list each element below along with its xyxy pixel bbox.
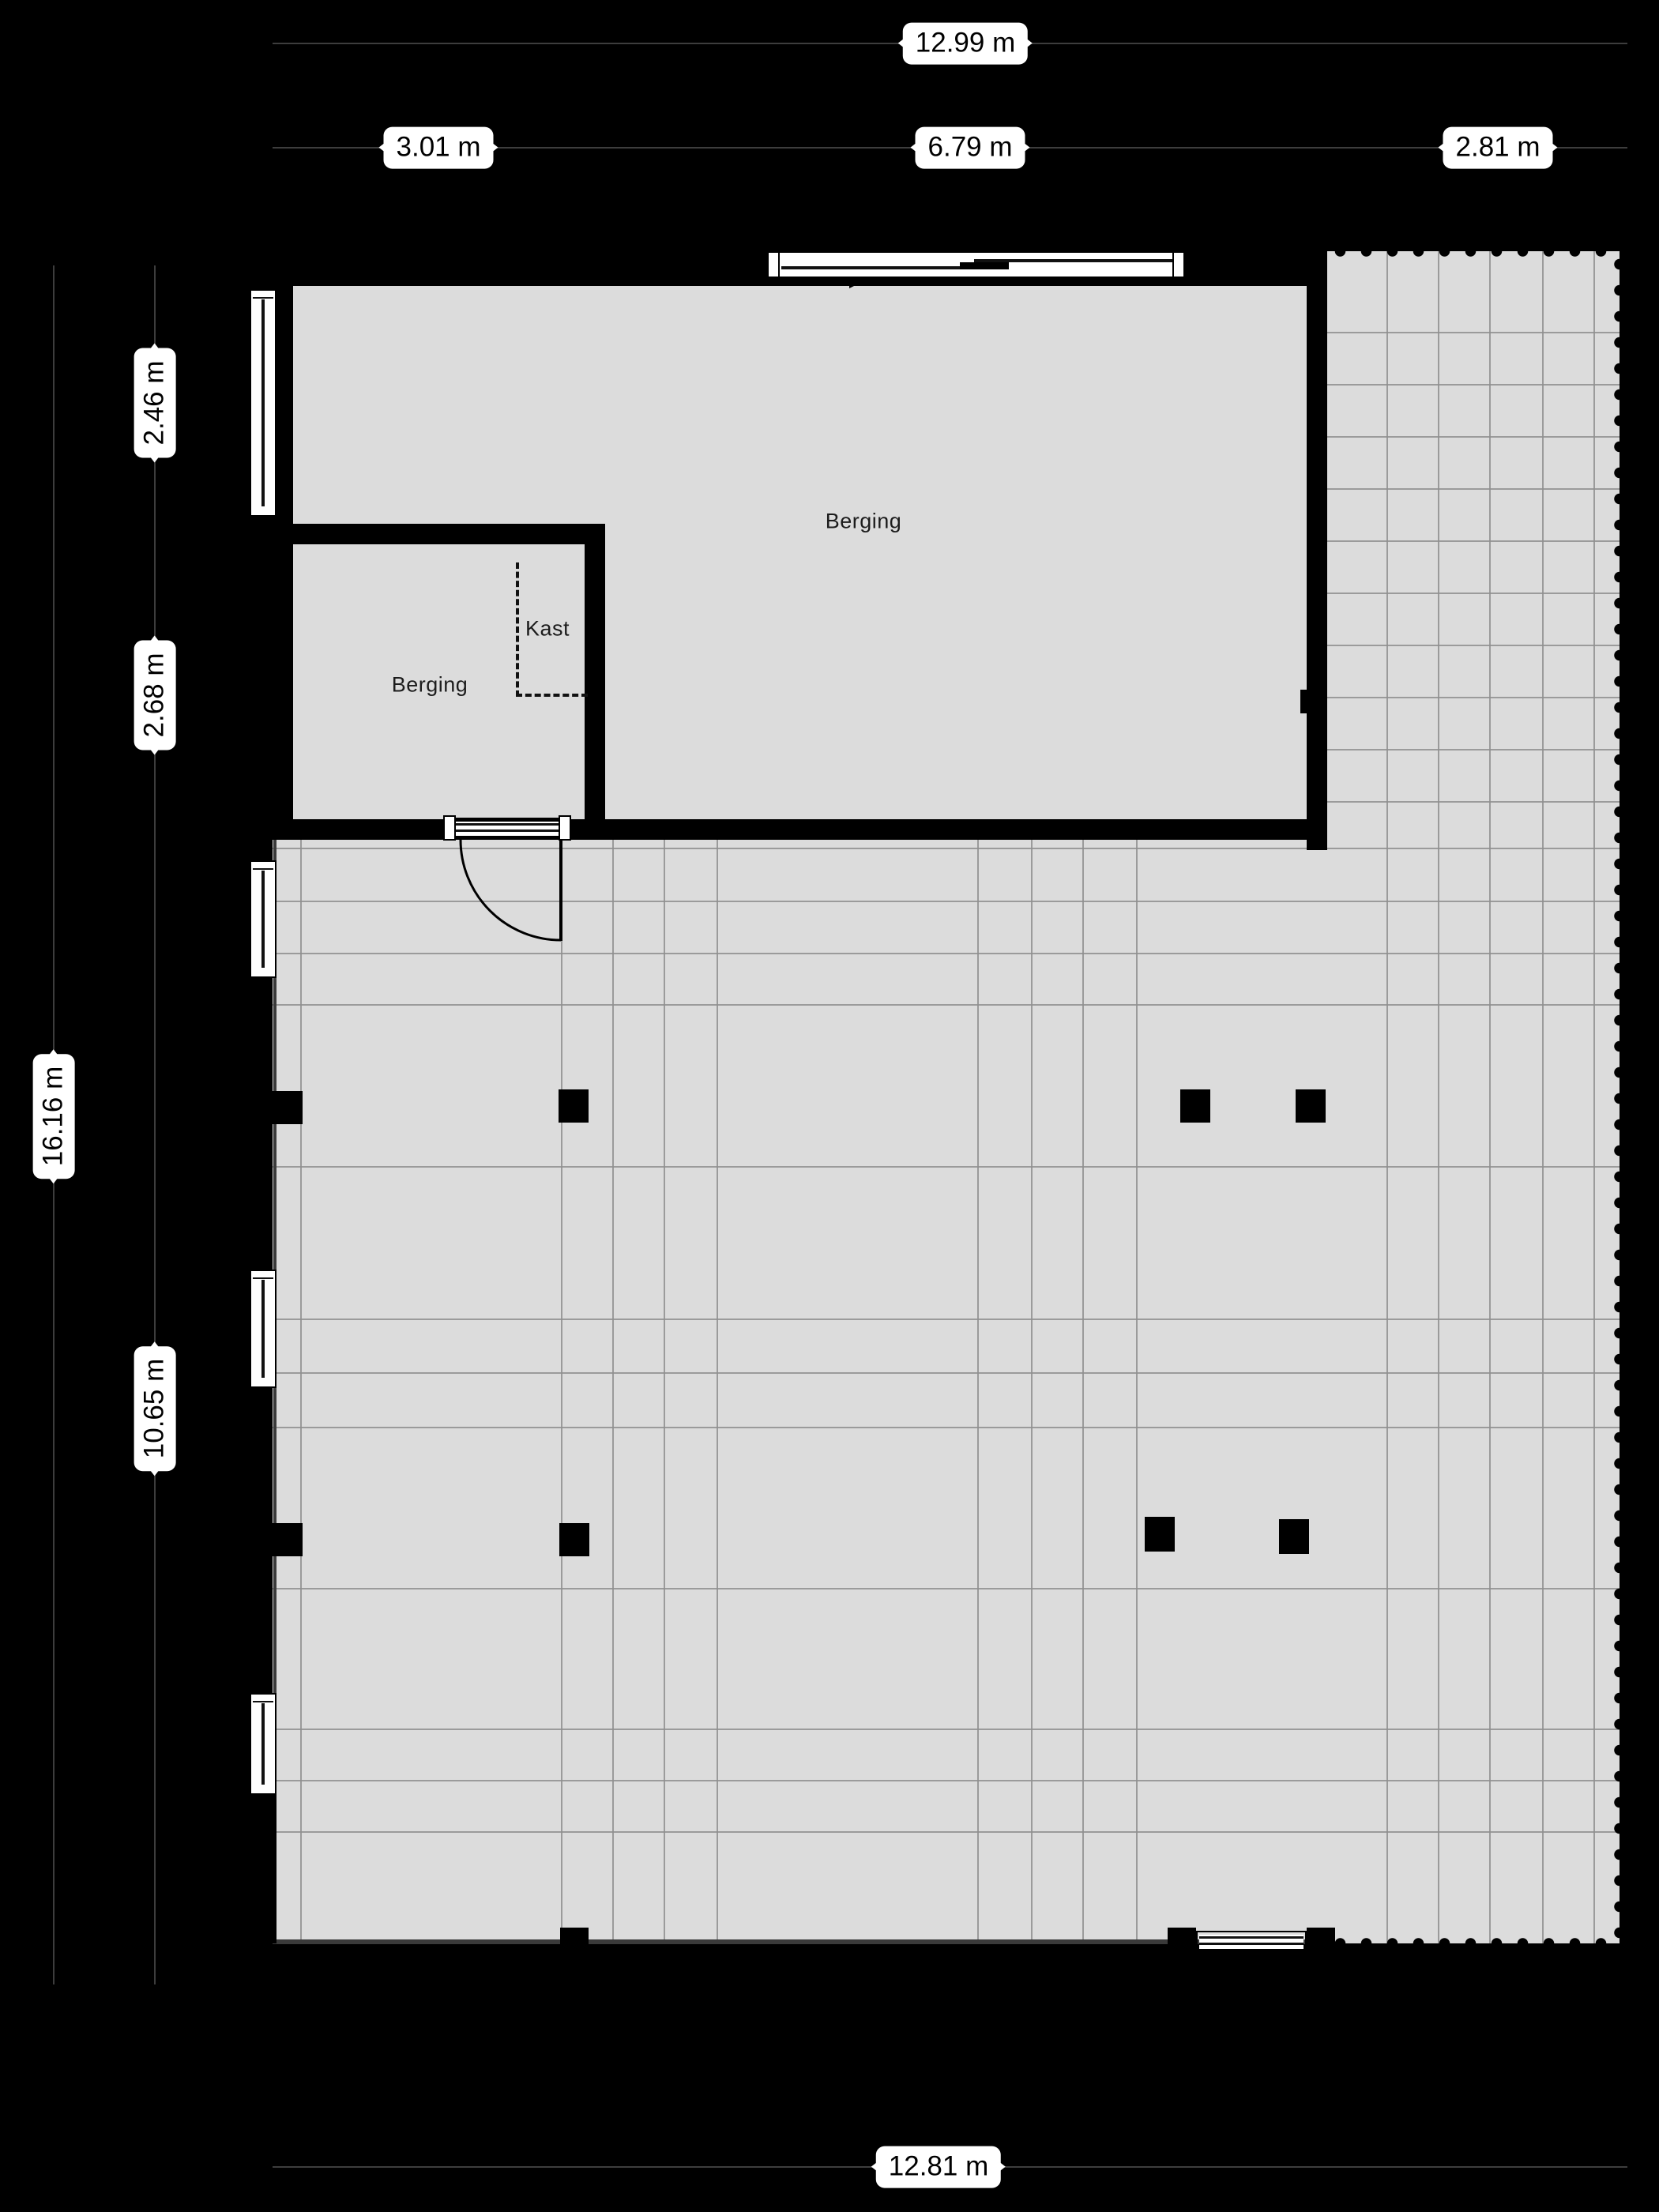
pillar	[1279, 1519, 1309, 1554]
tile-grid-hline	[1327, 801, 1619, 803]
pillar	[1180, 1089, 1210, 1123]
tile-grid-vline	[1542, 251, 1544, 1943]
tile-grid-hline	[273, 1729, 1619, 1730]
tile-grid-hline	[1327, 645, 1619, 646]
dim-label-bottom-total: 12.81 m	[876, 2146, 1001, 2188]
sliding-door-overlap	[960, 262, 1009, 269]
tile-grid-hline	[273, 953, 1619, 954]
pillar	[1145, 1517, 1175, 1552]
sliding-door	[769, 251, 1185, 278]
sliding-door-post-right	[1172, 251, 1185, 278]
room-label-closet: Kast	[525, 617, 570, 641]
pillar	[1307, 1928, 1335, 1959]
pillar	[560, 1928, 589, 1959]
window-storage-left	[250, 289, 276, 517]
entry-door-frame	[445, 818, 571, 840]
bottom-gate	[1196, 1931, 1307, 1953]
dim-label-left-mid: 2.68 m	[134, 641, 176, 750]
room-label-storage-small: Berging	[392, 673, 468, 698]
tile-grid-hline	[273, 1831, 1619, 1833]
tile-grid-hline	[1327, 332, 1619, 333]
window-terrace-left-1	[250, 860, 276, 978]
wall-bottom	[273, 819, 1327, 840]
tile-grid-vline	[1438, 251, 1439, 1943]
slide-direction-arrow	[810, 281, 851, 284]
tile-grid-vline	[1593, 251, 1595, 1943]
pillar	[273, 1091, 303, 1124]
window-terrace-left-2	[250, 1270, 276, 1388]
wall-right	[1307, 265, 1327, 850]
tile-grid-hline	[1327, 540, 1619, 542]
dim-label-left-upper: 2.46 m	[134, 348, 176, 458]
entry-door-swing-arc	[459, 840, 562, 943]
tile-grid-hline	[273, 1780, 1619, 1781]
slide-direction-arrow-head	[849, 277, 866, 288]
strip-dashed-bottom-edge	[1327, 1933, 1619, 1943]
pillar	[273, 1523, 303, 1556]
pillar	[1168, 1928, 1196, 1959]
tile-grid-hline	[273, 1166, 1619, 1168]
tile-grid-hline	[273, 1372, 1619, 1374]
pillar	[559, 1089, 589, 1123]
dim-label-top-seg3: 2.81 m	[1443, 127, 1553, 169]
pillar	[559, 1523, 589, 1556]
entry-door-post-left	[443, 815, 456, 841]
wall-pier-notch	[1300, 690, 1324, 713]
dim-label-top-seg2: 6.79 m	[916, 127, 1025, 169]
wall-small-room-top	[273, 524, 605, 544]
tile-grid-hline	[1327, 592, 1619, 594]
strip-dashed-right-edge	[1609, 251, 1619, 1943]
dim-label-top-total: 12.99 m	[903, 23, 1028, 65]
strip-dashed-top-edge	[1327, 251, 1619, 261]
storage-main-floor	[273, 265, 1327, 840]
tile-grid-hline	[273, 1004, 1619, 1006]
entry-door-post-right	[559, 815, 571, 841]
tile-grid-hline	[1327, 384, 1619, 386]
dim-label-top-seg1: 3.01 m	[384, 127, 494, 169]
tile-grid-hline	[1327, 488, 1619, 490]
tile-grid-vline	[1489, 251, 1491, 1943]
tile-grid-hline	[273, 1319, 1619, 1320]
tile-grid-vline	[1386, 251, 1388, 1943]
dim-label-left-outer: 16.16 m	[33, 1054, 75, 1179]
room-label-storage-main: Berging	[826, 510, 902, 534]
tile-grid-hline	[273, 1588, 1619, 1589]
pillar	[1296, 1089, 1326, 1123]
sliding-door-panel-left	[781, 266, 979, 269]
terrace-strip-floor	[1327, 251, 1619, 1943]
window-terrace-left-3	[250, 1693, 276, 1795]
floor-plan-canvas: Berging Berging Kast 12.99 m 3.01 m 6.79…	[0, 0, 1659, 2212]
bottom-left-wall-stub	[254, 1795, 276, 1943]
tile-grid-hline	[1327, 436, 1619, 438]
tile-grid-hline	[273, 1427, 1619, 1428]
tile-grid-hline	[1327, 697, 1619, 698]
tile-grid-hline	[1327, 749, 1619, 750]
dim-label-left-lower: 10.65 m	[134, 1346, 176, 1471]
sliding-door-post-left	[767, 251, 780, 278]
